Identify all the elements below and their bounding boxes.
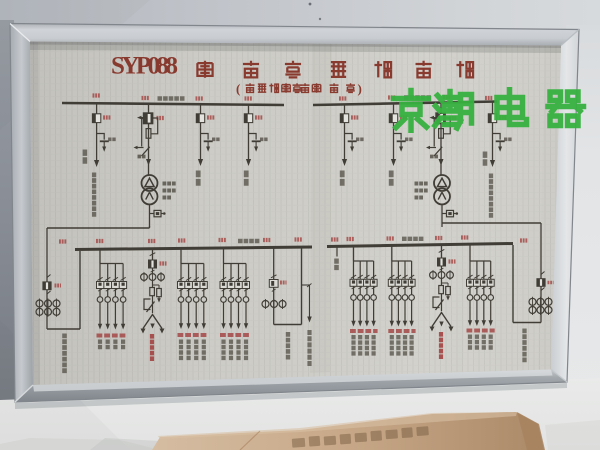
svg-text:(: ( bbox=[236, 81, 240, 96]
svg-text:): ) bbox=[358, 81, 362, 96]
svg-text:SYP088: SYP088 bbox=[111, 53, 178, 80]
